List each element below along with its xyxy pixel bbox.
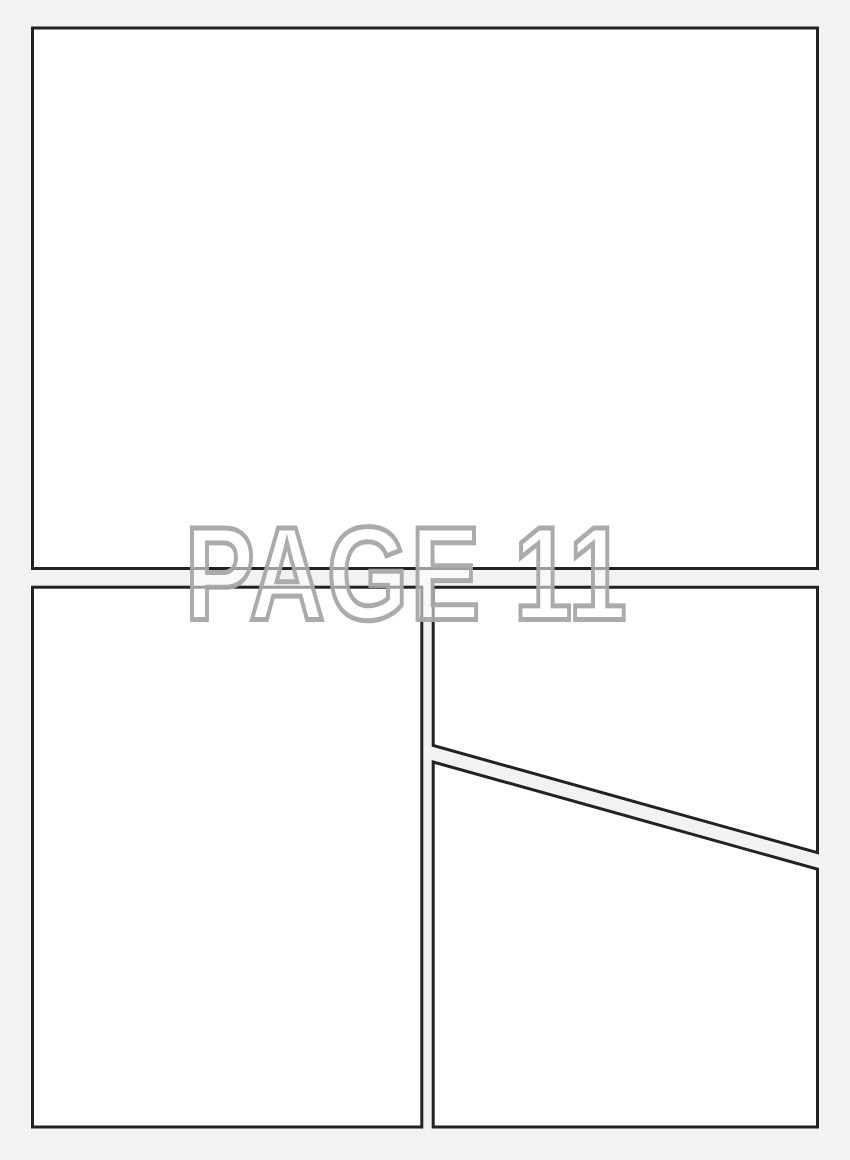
panel-bottom-left <box>33 587 422 1127</box>
panel-top <box>33 28 818 569</box>
page-number-label: PAGE 11 <box>185 509 629 642</box>
comic-page-template: PAGE 11 <box>0 0 850 1160</box>
